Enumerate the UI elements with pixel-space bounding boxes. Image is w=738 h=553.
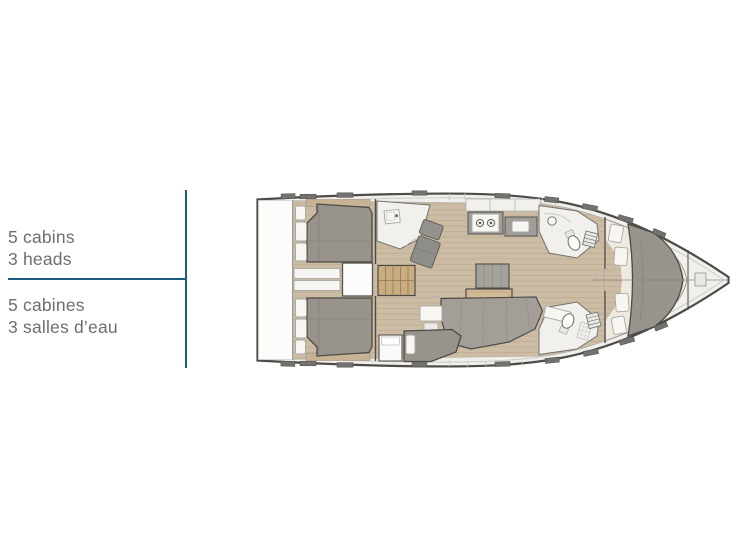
swim-platform [259, 200, 293, 360]
companionway-stairs [378, 266, 415, 296]
legend-en-line2: 3 heads [8, 248, 75, 270]
legend-horizontal-divider [8, 278, 186, 280]
aft-cabin-starboard-bed [307, 298, 372, 356]
galley [466, 199, 540, 236]
legend-fr-line2: 3 salles d’eau [8, 316, 118, 338]
windlass [695, 273, 706, 286]
galley-sink [512, 221, 529, 232]
legend-english: 5 cabins 3 heads [8, 226, 75, 270]
yacht-floorplan [248, 180, 738, 380]
page: 5 cabins 3 heads 5 cabines 3 salles d’ea… [0, 0, 738, 553]
day-head-sink [384, 209, 400, 223]
forward-head-port-sink [548, 217, 556, 225]
saloon-seat [420, 306, 442, 321]
legend-french: 5 cabines 3 salles d’eau [8, 294, 118, 338]
legend-en-line1: 5 cabins [8, 226, 75, 248]
aft-cabin-port-bed [307, 204, 372, 262]
legend-fr-line1: 5 cabines [8, 294, 118, 316]
aft-cabin-starboard-pillows [296, 340, 306, 354]
aft-cabin-port-pillows [296, 206, 306, 220]
engine-hatch [343, 263, 373, 296]
legend-vertical-divider [185, 190, 187, 368]
